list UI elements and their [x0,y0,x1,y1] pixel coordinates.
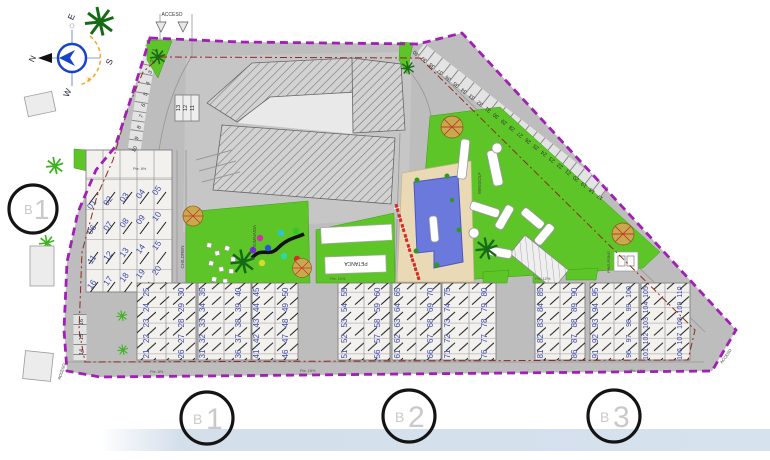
number-label: 11 [190,105,196,111]
slope-label: Pte. 8% [150,370,164,374]
number-label: 56 [373,349,382,358]
number-label: 70 [426,287,435,296]
svg-text:2: 2 [408,401,425,434]
marker-b1-left: B 1 [9,185,57,233]
number-label: 28 [177,318,186,327]
number-label: 108 [677,317,684,329]
gimnasia-label: GIMNASIA [252,225,257,247]
number-label: 85 [536,287,545,296]
number-label: 90 [570,287,579,296]
number-label: 94 [591,303,600,312]
number-label: 101 [643,348,650,360]
number-label: 109 [677,302,684,314]
svg-text:3: 3 [613,401,630,434]
svg-text:B: B [600,409,609,425]
number-label: 32 [198,334,207,343]
number-label: 105 [643,286,650,298]
number-label: 33 [198,318,207,327]
number-label: 30 [177,287,186,296]
number-label: 75 [443,287,452,296]
footer-band [100,429,770,451]
main-building [207,58,405,204]
number-label: 62 [393,334,402,343]
minigolf-label: MINIGOLF [477,172,482,194]
number-label: 76 [480,349,489,358]
number-label: 93 [591,318,600,327]
slope-label: Pte. 12% [330,277,346,281]
north-arrowhead [38,53,52,63]
acceso-top-label: ACCESO [161,12,182,18]
number-label: 35 [198,287,207,296]
svg-text:1: 1 [206,403,223,436]
number-label: 80 [480,287,489,296]
number-label: 92 [591,334,600,343]
number-label: 68 [426,318,435,327]
parking-numbers-boxed: 131211 [176,105,196,111]
slope-label: Pte. 8% [133,167,147,171]
number-label: 24 [142,303,151,312]
number-label: 86 [570,349,579,358]
number-label: 107 [677,333,684,345]
children-gimnasia-green [186,201,310,283]
number-label: 82 [536,334,545,343]
number-label: 74 [443,303,452,312]
number-label: 54 [340,303,349,312]
number-label: 22 [142,334,151,343]
number-label: 52 [340,334,349,343]
number-label: 53 [340,318,349,327]
number-label: 40 [234,287,243,296]
number-label: 95 [591,287,600,296]
number-label: 57 [373,334,382,343]
number-label: 39 [234,303,243,312]
number-label: 83 [536,318,545,327]
number-label: 103 [643,317,650,329]
number-label: 12 [183,105,189,111]
number-label: 67 [426,334,435,343]
number-label: 78 [480,318,489,327]
number-label: 96 [626,350,633,358]
number-label: 45 [252,287,261,296]
site-plan-svg: 0102030405 0607080910 1112131415 1617181… [0,0,770,460]
svg-text:B: B [24,202,33,217]
petanca-label: PETANCA [344,260,368,266]
number-label: 21 [142,349,151,358]
number-label: 44 [252,303,261,312]
number-label: 55 [340,287,349,296]
slope-label: Pte. 15% [300,369,316,373]
number-label: 42 [252,334,261,343]
number-label: 64 [393,303,402,312]
number-label: 65 [393,287,402,296]
number-label: 87 [570,334,579,343]
number-label: 27 [177,334,186,343]
number-label: 16 [79,319,85,325]
svg-text:B: B [395,409,404,425]
compass-sun-top-icon: ☼ [67,20,76,31]
unit-numbers-column: 101102103104105 [643,286,650,360]
slope-label: Pte. 12% [535,277,551,281]
compass-s-label: S [104,57,116,67]
number-label: 46 [281,349,290,358]
children-label: CHILDREN [180,245,185,268]
number-label: 23 [142,318,151,327]
svg-text:1: 1 [34,194,50,225]
number-label: 49 [281,303,290,312]
number-label: 14 [79,349,85,355]
compass-w-label: W [61,87,73,99]
number-label: 102 [643,333,650,345]
number-label: 97 [626,335,633,343]
number-label: 48 [281,318,290,327]
number-label: 58 [373,318,382,327]
number-label: 47 [281,334,290,343]
number-label: 61 [393,349,402,358]
site-plan-page: 0102030405 0607080910 1112131415 1617181… [0,0,770,460]
number-label: 99 [626,304,633,312]
number-label: 13 [176,105,182,111]
number-label: 73 [443,318,452,327]
compass-n-label: N [26,54,38,64]
number-label: 25 [142,287,151,296]
number-label: 41 [252,349,261,358]
number-label: 89 [570,303,579,312]
utility-structures [23,91,56,381]
number-label: 71 [443,349,452,358]
number-label: 98 [626,319,633,327]
number-label: 72 [443,334,452,343]
ping-pong-label: PING-PONG [607,251,611,273]
number-label: 51 [340,349,349,358]
number-label: 36 [234,349,243,358]
number-label: 77 [480,334,489,343]
unit-blocks-south [137,283,690,360]
number-label: 34 [198,303,207,312]
number-label: 91 [591,349,600,358]
number-label: 88 [570,318,579,327]
number-label: 60 [373,287,382,296]
number-label: 84 [536,303,545,312]
number-label: 63 [393,318,402,327]
compass-sun-small-icon: ☀ [85,75,92,84]
number-label: 104 [643,302,650,314]
number-label: 50 [281,287,290,296]
number-label: 79 [480,303,489,312]
number-label: 26 [177,349,186,358]
unit-numbers-column: 106107108109110 [677,286,684,360]
acceso-bottom-left-label: ACCESO [57,363,67,381]
ping-pong-area [614,252,638,271]
svg-text:B: B [193,411,202,427]
number-label: 59 [373,303,382,312]
number-label: 69 [426,303,435,312]
acceso-top-arrows [156,22,188,32]
number-label: 43 [252,318,261,327]
number-label: 37 [234,334,243,343]
number-label: 29 [177,303,186,312]
number-label: 31 [198,349,207,358]
number-label: 38 [234,318,243,327]
number-label: 100 [626,286,633,298]
number-label: 66 [426,349,435,358]
number-label: 106 [677,348,684,360]
number-label: 110 [677,286,684,297]
number-label: 81 [536,349,545,358]
